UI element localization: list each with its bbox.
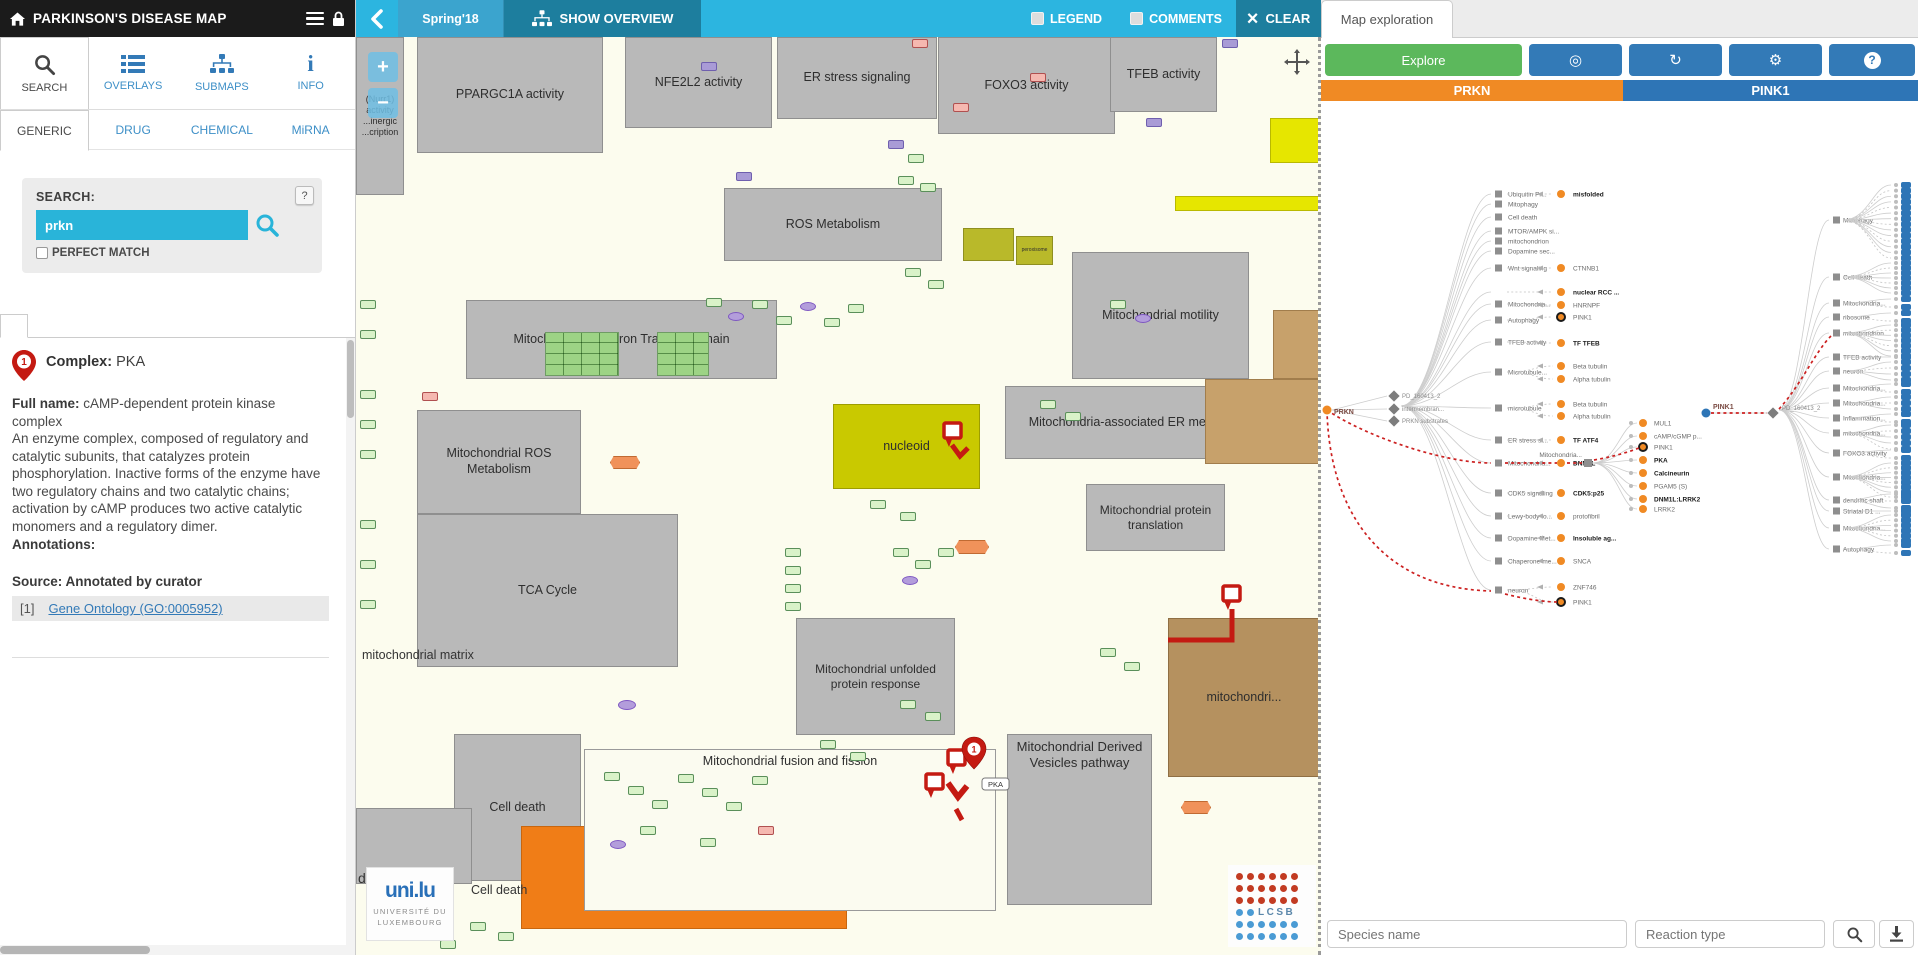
molecule-glyph: [800, 302, 816, 311]
tree-node[interactable]: [1901, 428, 1911, 434]
species-name-input[interactable]: [1327, 920, 1627, 948]
tree-node[interactable]: [1901, 434, 1911, 440]
legend-label: LEGEND: [1050, 12, 1102, 26]
svg-text:CDK5:p25: CDK5:p25: [1573, 491, 1604, 498]
compartment-erstress[interactable]: ER stress signaling: [777, 37, 937, 119]
svg-text:PRKN substrates: PRKN substrates: [1402, 419, 1448, 425]
map-version-tab[interactable]: Spring'18: [398, 0, 504, 37]
comments-checkbox[interactable]: [1130, 12, 1143, 25]
svg-text:MTOR/AMPK si...: MTOR/AMPK si...: [1508, 229, 1559, 236]
molecule-glyph: [824, 318, 840, 327]
show-overview-label: SHOW OVERVIEW: [560, 11, 674, 26]
molecule-glyph: [652, 800, 668, 809]
tree-category[interactable]: [1495, 437, 1502, 444]
compartment-ppargc1a[interactable]: PPARGC1A activity: [417, 37, 603, 153]
source-label: Source: Annotated by curator: [12, 574, 329, 589]
svg-text:PINK1: PINK1: [1573, 315, 1592, 322]
tree-category[interactable]: [1833, 354, 1840, 361]
tree-category[interactable]: [1495, 339, 1502, 346]
map-canvas[interactable]: (Nurr1) activity ...inergic ...criptionP…: [356, 37, 1321, 955]
tree-node[interactable]: [1901, 227, 1911, 233]
svg-text:Cell death: Cell death: [1508, 215, 1538, 222]
nav-item-search[interactable]: SEARCH: [0, 37, 89, 109]
tree-node[interactable]: [1901, 348, 1911, 354]
compartment-label: nucleoid: [877, 437, 936, 457]
download-icon: [1889, 926, 1904, 942]
molecule-glyph: [905, 268, 921, 277]
svg-text:Microtubule...: Microtubule...: [1508, 370, 1547, 377]
tree-node[interactable]: [1639, 432, 1647, 440]
tree-node[interactable]: [1639, 482, 1647, 490]
molecule-glyph: [1110, 300, 1126, 309]
sidebar-hscrollbar[interactable]: [0, 945, 355, 955]
explore-button[interactable]: Explore: [1325, 44, 1522, 76]
molecule-glyph: [360, 450, 376, 459]
menu-icon[interactable]: [306, 9, 324, 29]
info-icon: i: [307, 54, 313, 74]
tree-category[interactable]: [1495, 369, 1502, 376]
tree-node[interactable]: [1901, 204, 1911, 210]
svg-text:Beta tubulin: Beta tubulin: [1573, 364, 1608, 371]
svg-text:misfolded: misfolded: [1573, 192, 1604, 199]
exploration-footer: [1321, 920, 1918, 950]
molecule-glyph: [545, 332, 619, 376]
tree-node[interactable]: [1639, 505, 1647, 513]
molecule-glyph: [955, 540, 989, 554]
tree-node[interactable]: [1557, 489, 1565, 497]
svg-text:mitochondrion: mitochondrion: [1508, 239, 1549, 246]
svg-text:PGAM5 (S): PGAM5 (S): [1654, 484, 1687, 491]
tree-node[interactable]: [1901, 371, 1911, 377]
tree-node[interactable]: [1901, 498, 1911, 504]
svg-text:TFEB activity: TFEB activity: [1843, 355, 1882, 362]
search-icon: [33, 53, 56, 76]
tree-category[interactable]: [1833, 385, 1840, 392]
tab-map-exploration[interactable]: Map exploration: [1321, 0, 1453, 38]
tree-node[interactable]: [1901, 221, 1911, 227]
compartment-ybox[interactable]: [1270, 118, 1320, 163]
tree-node[interactable]: [1557, 557, 1565, 565]
molecule-glyph: [678, 774, 694, 783]
tree-category[interactable]: [1495, 265, 1502, 272]
svg-text:TF TFEB: TF TFEB: [1573, 341, 1600, 348]
tree-category[interactable]: [1495, 587, 1502, 594]
tree-category[interactable]: [1833, 300, 1840, 307]
compartment-tansm[interactable]: [1273, 310, 1320, 379]
tree-hub[interactable]: [1388, 390, 1399, 401]
tree-node[interactable]: [1901, 542, 1911, 548]
compartment-olive2[interactable]: [963, 228, 1014, 261]
tree-category[interactable]: [1833, 217, 1840, 224]
tree-node[interactable]: [1901, 533, 1911, 539]
tree-node[interactable]: [1639, 495, 1647, 503]
compartment-tanbox[interactable]: [1205, 379, 1320, 464]
tree-category[interactable]: [1495, 238, 1502, 245]
chevron-left-icon: [370, 9, 384, 29]
tree-node[interactable]: [1901, 550, 1911, 556]
download-button[interactable]: [1879, 920, 1914, 948]
tree-node[interactable]: [1557, 436, 1565, 444]
tree-category[interactable]: [1495, 460, 1502, 467]
tree-node[interactable]: [1901, 332, 1911, 338]
tab-chemical[interactable]: CHEMICAL: [178, 110, 267, 149]
tree-category[interactable]: [1833, 508, 1840, 515]
pan-move-icon[interactable]: [1284, 49, 1310, 75]
exploration-buttons: Explore ◎ ↻ ⚙ ?: [1321, 44, 1918, 76]
molecule-glyph: [657, 332, 709, 376]
molecule-glyph: [700, 838, 716, 847]
tree-node[interactable]: [1901, 304, 1911, 310]
compartment-mitotrans[interactable]: Mitochondrial protein translation: [1086, 484, 1225, 551]
map-exploration-panel: Map exploration Explore ◎ ↻ ⚙ ? PRKN PIN…: [1321, 0, 1918, 955]
app-root: PARKINSON'S DISEASE MAP SEARCH OVERLAYS …: [0, 0, 1918, 955]
app-title: PARKINSON'S DISEASE MAP: [33, 11, 298, 26]
molecule-glyph: [1146, 118, 1162, 127]
map-toolbar: Spring'18 SHOW OVERVIEW LEGEND COMMENTS …: [356, 0, 1321, 37]
svg-text:Dopamine sec...: Dopamine sec...: [1508, 249, 1555, 256]
tree-node[interactable]: [1901, 522, 1911, 528]
molecule-glyph: [898, 176, 914, 185]
tab-generic[interactable]: GENERIC: [0, 110, 89, 151]
tree-category[interactable]: [1833, 525, 1840, 532]
tree-category[interactable]: [1495, 535, 1502, 542]
tree-category[interactable]: [1495, 558, 1502, 565]
tree-node[interactable]: [1901, 512, 1911, 518]
tree-node[interactable]: [1901, 411, 1911, 417]
refresh-button[interactable]: ↻: [1629, 44, 1722, 76]
tree-node[interactable]: [1901, 394, 1911, 400]
svg-text:CTNNB1: CTNNB1: [1573, 266, 1599, 273]
tree-node[interactable]: [1901, 365, 1911, 371]
compartment-label: FOXO3 activity: [978, 76, 1074, 96]
tree-category[interactable]: [1495, 191, 1502, 198]
tree-hub[interactable]: [1584, 459, 1592, 467]
tree-node[interactable]: [1557, 512, 1565, 520]
svg-text:DNM1L:LRRK2: DNM1L:LRRK2: [1654, 497, 1701, 504]
compartment-label: Mitochondrial unfolded protein response: [797, 660, 954, 694]
results-divider: [12, 657, 329, 658]
tree-node[interactable]: [1901, 422, 1911, 428]
molecule-glyph: [440, 940, 456, 949]
result-fullname: Full name: cAMP-dependent protein kinase…: [12, 395, 329, 430]
settings-button[interactable]: ⚙: [1729, 44, 1822, 76]
compartment-nucleoid[interactable]: nucleoid: [833, 404, 980, 489]
search-input[interactable]: [36, 210, 248, 240]
gear-icon: ⚙: [1769, 52, 1782, 69]
results-scrollbar[interactable]: [346, 338, 355, 950]
tree-category[interactable]: [1495, 405, 1502, 412]
svg-text:Insoluble ag...: Insoluble ag...: [1573, 536, 1617, 543]
molecule-glyph: [752, 776, 768, 785]
zoom-out-button[interactable]: −: [368, 88, 398, 118]
target-button[interactable]: ◎: [1529, 44, 1622, 76]
overlays-icon: [121, 54, 145, 74]
nav-item-info[interactable]: i INFO: [266, 37, 355, 109]
molecule-glyph: [360, 560, 376, 569]
tree-node[interactable]: [1557, 190, 1565, 198]
search-submit-icon[interactable]: [254, 212, 280, 238]
tree-search-button[interactable]: [1833, 920, 1875, 948]
compartment-ybar[interactable]: [1175, 196, 1321, 211]
svg-text:CDK5 signaling: CDK5 signaling: [1508, 491, 1553, 498]
comments-toggle[interactable]: COMMENTS: [1116, 0, 1236, 37]
nav-label: OVERLAYS: [104, 80, 163, 92]
tree-node[interactable]: [1901, 290, 1911, 296]
svg-text:PD_160413_2: PD_160413_2: [1402, 394, 1441, 400]
question-icon: ?: [1864, 52, 1881, 69]
molecule-glyph: [776, 316, 792, 325]
molecule-glyph: [953, 103, 969, 112]
tree-category[interactable]: [1495, 214, 1502, 221]
molecule-glyph: [1065, 412, 1081, 421]
tree-root-pink1[interactable]: [1702, 409, 1711, 418]
molecule-glyph: [785, 602, 801, 611]
compartment-label: ROS Metabolism: [780, 215, 886, 235]
tree-category[interactable]: [1833, 546, 1840, 553]
molecule-glyph: [498, 932, 514, 941]
svg-text:Mitochondria...: Mitochondria...: [1508, 461, 1551, 468]
tree-category[interactable]: [1495, 301, 1502, 308]
svg-text:Alpha tubulin: Alpha tubulin: [1573, 377, 1611, 384]
tree-node[interactable]: [1557, 301, 1565, 309]
svg-text:intermembran...: intermembran...: [1402, 407, 1444, 413]
tree-category[interactable]: [1833, 430, 1840, 437]
compartment-rosmet[interactable]: ROS Metabolism: [724, 188, 942, 261]
submaps-icon: [210, 54, 234, 75]
search-flag-marker[interactable]: [1223, 586, 1240, 610]
target-icon: ◎: [1569, 52, 1582, 69]
molecule-glyph: [360, 600, 376, 609]
tree-node[interactable]: [1557, 313, 1565, 321]
tree-node[interactable]: [1557, 534, 1565, 542]
tree-node[interactable]: [1901, 400, 1911, 406]
compartment-motility[interactable]: Mitochondrial motility: [1072, 252, 1249, 379]
tree-node[interactable]: [1557, 288, 1565, 296]
tree-node[interactable]: [1901, 322, 1911, 328]
help-circle-button[interactable]: ?: [1829, 44, 1915, 76]
svg-text:microtubule: microtubule: [1508, 406, 1542, 413]
molecule-glyph: [1124, 662, 1140, 671]
compartment-mitoros[interactable]: Mitochondrial ROS Metabolism: [417, 410, 581, 514]
tree-node[interactable]: [1901, 491, 1911, 497]
tree-node[interactable]: [1901, 210, 1911, 216]
zoom-in-button[interactable]: +: [368, 52, 398, 82]
tree-node[interactable]: [1901, 310, 1911, 316]
tree-node[interactable]: [1901, 199, 1911, 205]
molecule-glyph: [915, 560, 931, 569]
svg-text:HNRNPF: HNRNPF: [1573, 303, 1600, 310]
tree-node[interactable]: [1901, 233, 1911, 239]
compartment-label: TCA Cycle: [512, 581, 583, 601]
molecule-glyph: [728, 312, 744, 321]
tree-node[interactable]: [1557, 375, 1565, 383]
tree-node[interactable]: [1639, 469, 1647, 477]
tree-node[interactable]: [1639, 456, 1647, 464]
tree-node[interactable]: [1639, 419, 1647, 427]
compartment-label: Mitochondrial protein translation: [1087, 501, 1224, 535]
legend-toggle[interactable]: LEGEND: [1017, 0, 1116, 37]
tree-hub[interactable]: [1388, 403, 1399, 414]
compartment-tca[interactable]: TCA Cycle: [417, 514, 678, 667]
molecule-glyph: [604, 772, 620, 781]
search-panel: SEARCH: ? PERFECT MATCH: [22, 178, 322, 273]
molecule-glyph: [1030, 73, 1046, 82]
tree-node[interactable]: [1901, 440, 1911, 446]
lock-icon[interactable]: [332, 11, 345, 27]
svg-text:PINK1: PINK1: [1713, 404, 1734, 411]
tree-category[interactable]: [1833, 368, 1840, 375]
tab-mirna[interactable]: MiRNA: [266, 110, 355, 149]
tree-category[interactable]: [1495, 248, 1502, 255]
tree-node[interactable]: [1639, 443, 1647, 451]
svg-text:cAMP/cGMP p...: cAMP/cGMP p...: [1654, 434, 1702, 441]
reaction-type-input[interactable]: [1635, 920, 1825, 948]
tree-node[interactable]: [1557, 598, 1565, 606]
tree-node[interactable]: [1557, 400, 1565, 408]
tree-node[interactable]: [1901, 327, 1911, 333]
tree-node[interactable]: [1901, 338, 1911, 344]
clear-button[interactable]: ×CLEAR: [1236, 0, 1321, 37]
molecule-glyph: [820, 740, 836, 749]
tree-node[interactable]: [1901, 188, 1911, 194]
tree-category[interactable]: [1833, 314, 1840, 321]
nav-item-overlays[interactable]: OVERLAYS: [89, 37, 178, 109]
tree-hub[interactable]: [1767, 407, 1778, 418]
molecule-glyph: [1100, 648, 1116, 657]
svg-text:1: 1: [21, 357, 27, 368]
molecule-glyph: [888, 140, 904, 149]
svg-text:TF ATF4: TF ATF4: [1573, 438, 1599, 445]
tree-category[interactable]: [1495, 201, 1502, 208]
tree-node[interactable]: [1557, 339, 1565, 347]
molecule-glyph: [360, 330, 376, 339]
gene-bar-pink1[interactable]: PINK1: [1623, 80, 1918, 101]
tree-node[interactable]: [1557, 412, 1565, 420]
svg-text:FOXO3 activity: FOXO3 activity: [1843, 451, 1887, 458]
molecule-glyph: [785, 566, 801, 575]
compartment-nfe2l2[interactable]: NFE2L2 activity: [625, 37, 772, 128]
tree-category[interactable]: [1833, 497, 1840, 504]
svg-text:LRRK2: LRRK2: [1654, 507, 1675, 514]
collapse-panel-button[interactable]: [356, 0, 398, 37]
compartment-mdv[interactable]: Mitochondrial Derived Vesicles pathway: [1007, 734, 1152, 905]
tree-node[interactable]: [1901, 296, 1911, 302]
tree-node[interactable]: [1557, 583, 1565, 591]
tree-node[interactable]: [1557, 362, 1565, 370]
result-title: Complex: PKA: [46, 354, 145, 370]
tree-node[interactable]: [1901, 528, 1911, 534]
svg-text:ZNF746: ZNF746: [1573, 585, 1597, 592]
svg-text:Beta tubulin: Beta tubulin: [1573, 402, 1608, 409]
compartment-label: NFE2L2 activity: [649, 73, 749, 93]
tree-node[interactable]: [1557, 264, 1565, 272]
molecule-glyph: [628, 786, 644, 795]
molecule-glyph: [938, 548, 954, 557]
tree-category[interactable]: [1495, 513, 1502, 520]
exploration-tree[interactable]: Ubiquitin Pr...misfoldedMitophagyCell de…: [1321, 110, 1918, 910]
svg-text:PINK1: PINK1: [1654, 445, 1673, 452]
tree-node[interactable]: [1901, 216, 1911, 222]
tree-node[interactable]: [1901, 238, 1911, 244]
molecule-glyph: [908, 154, 924, 163]
nav-item-submaps[interactable]: SUBMAPS: [178, 37, 267, 109]
reference-row: [1] Gene Ontology (GO:0005952): [12, 596, 329, 621]
tree-category[interactable]: [1833, 415, 1840, 422]
tree-category[interactable]: [1833, 330, 1840, 337]
svg-text:SNCA: SNCA: [1573, 559, 1592, 566]
show-overview-button[interactable]: SHOW OVERVIEW: [504, 0, 701, 37]
molecule-glyph: [758, 826, 774, 835]
results-tab-notch[interactable]: [0, 314, 28, 338]
compartment-label: Mitochondrial Derived Vesicles pathway: [1008, 735, 1151, 774]
tree-node[interactable]: [1557, 459, 1565, 467]
tree-category[interactable]: [1833, 274, 1840, 281]
tree-category[interactable]: [1833, 474, 1840, 481]
svg-text:Autophagy: Autophagy: [1508, 318, 1540, 325]
tree-category[interactable]: [1833, 400, 1840, 407]
gene-ontology-link[interactable]: Gene Ontology (GO:0005952): [48, 601, 222, 616]
compartment-peroxi[interactable]: peroxisome: [1016, 236, 1053, 265]
tree-category[interactable]: [1495, 490, 1502, 497]
tree-node[interactable]: [1901, 359, 1911, 365]
tree-hub[interactable]: [1388, 415, 1399, 426]
app-header: PARKINSON'S DISEASE MAP: [0, 0, 355, 37]
tree-node[interactable]: [1901, 193, 1911, 199]
tree-node[interactable]: [1901, 517, 1911, 523]
svg-text:Dopamine Met...: Dopamine Met...: [1508, 536, 1556, 543]
tab-drug[interactable]: DRUG: [89, 110, 178, 149]
tree-root-prkn[interactable]: [1323, 406, 1332, 415]
tree-node[interactable]: [1901, 182, 1911, 188]
refresh-icon: ↻: [1669, 52, 1682, 69]
molecule-glyph: [470, 922, 486, 931]
tree-category[interactable]: [1495, 317, 1502, 324]
tree-node[interactable]: [1901, 381, 1911, 387]
perfect-match-checkbox[interactable]: [36, 247, 48, 259]
close-icon: ×: [1247, 9, 1259, 29]
tree-node[interactable]: [1901, 343, 1911, 349]
compartment-tfeb[interactable]: TFEB activity: [1110, 37, 1217, 112]
molecule-glyph: [1222, 39, 1238, 48]
tree-node[interactable]: [1901, 244, 1911, 250]
tree-category[interactable]: [1495, 228, 1502, 235]
tree-node[interactable]: [1901, 447, 1911, 453]
help-button[interactable]: ?: [295, 186, 314, 205]
tree-node[interactable]: [1901, 249, 1911, 255]
molecule-glyph: [360, 420, 376, 429]
exploration-tabbar: Map exploration: [1321, 0, 1918, 38]
home-icon[interactable]: [10, 12, 25, 26]
search-label: SEARCH:: [36, 190, 308, 204]
molecule-glyph: [1181, 801, 1211, 814]
molecule-glyph: [360, 390, 376, 399]
svg-text:PRKN: PRKN: [1334, 409, 1354, 416]
gene-bar-prkn[interactable]: PRKN: [1321, 80, 1623, 101]
search-results: 1 Complex: PKA Full name: cAMP-dependent…: [0, 337, 355, 949]
molecule-glyph: [422, 392, 438, 401]
legend-checkbox[interactable]: [1031, 12, 1044, 25]
compartment-label: Mitochondrial ROS Metabolism: [418, 444, 580, 479]
molecule-glyph: [785, 584, 801, 593]
comments-label: COMMENTS: [1149, 12, 1222, 26]
tree-category[interactable]: [1833, 450, 1840, 457]
compartment-label: ER stress signaling: [798, 68, 917, 88]
svg-text:Mitophagy: Mitophagy: [1508, 202, 1539, 209]
molecule-glyph: [928, 280, 944, 289]
compartment-foxo3[interactable]: FOXO3 activity: [938, 37, 1115, 134]
svg-text:PKA: PKA: [1654, 458, 1668, 465]
compartment-brownbig[interactable]: mitochondri...: [1168, 618, 1320, 777]
